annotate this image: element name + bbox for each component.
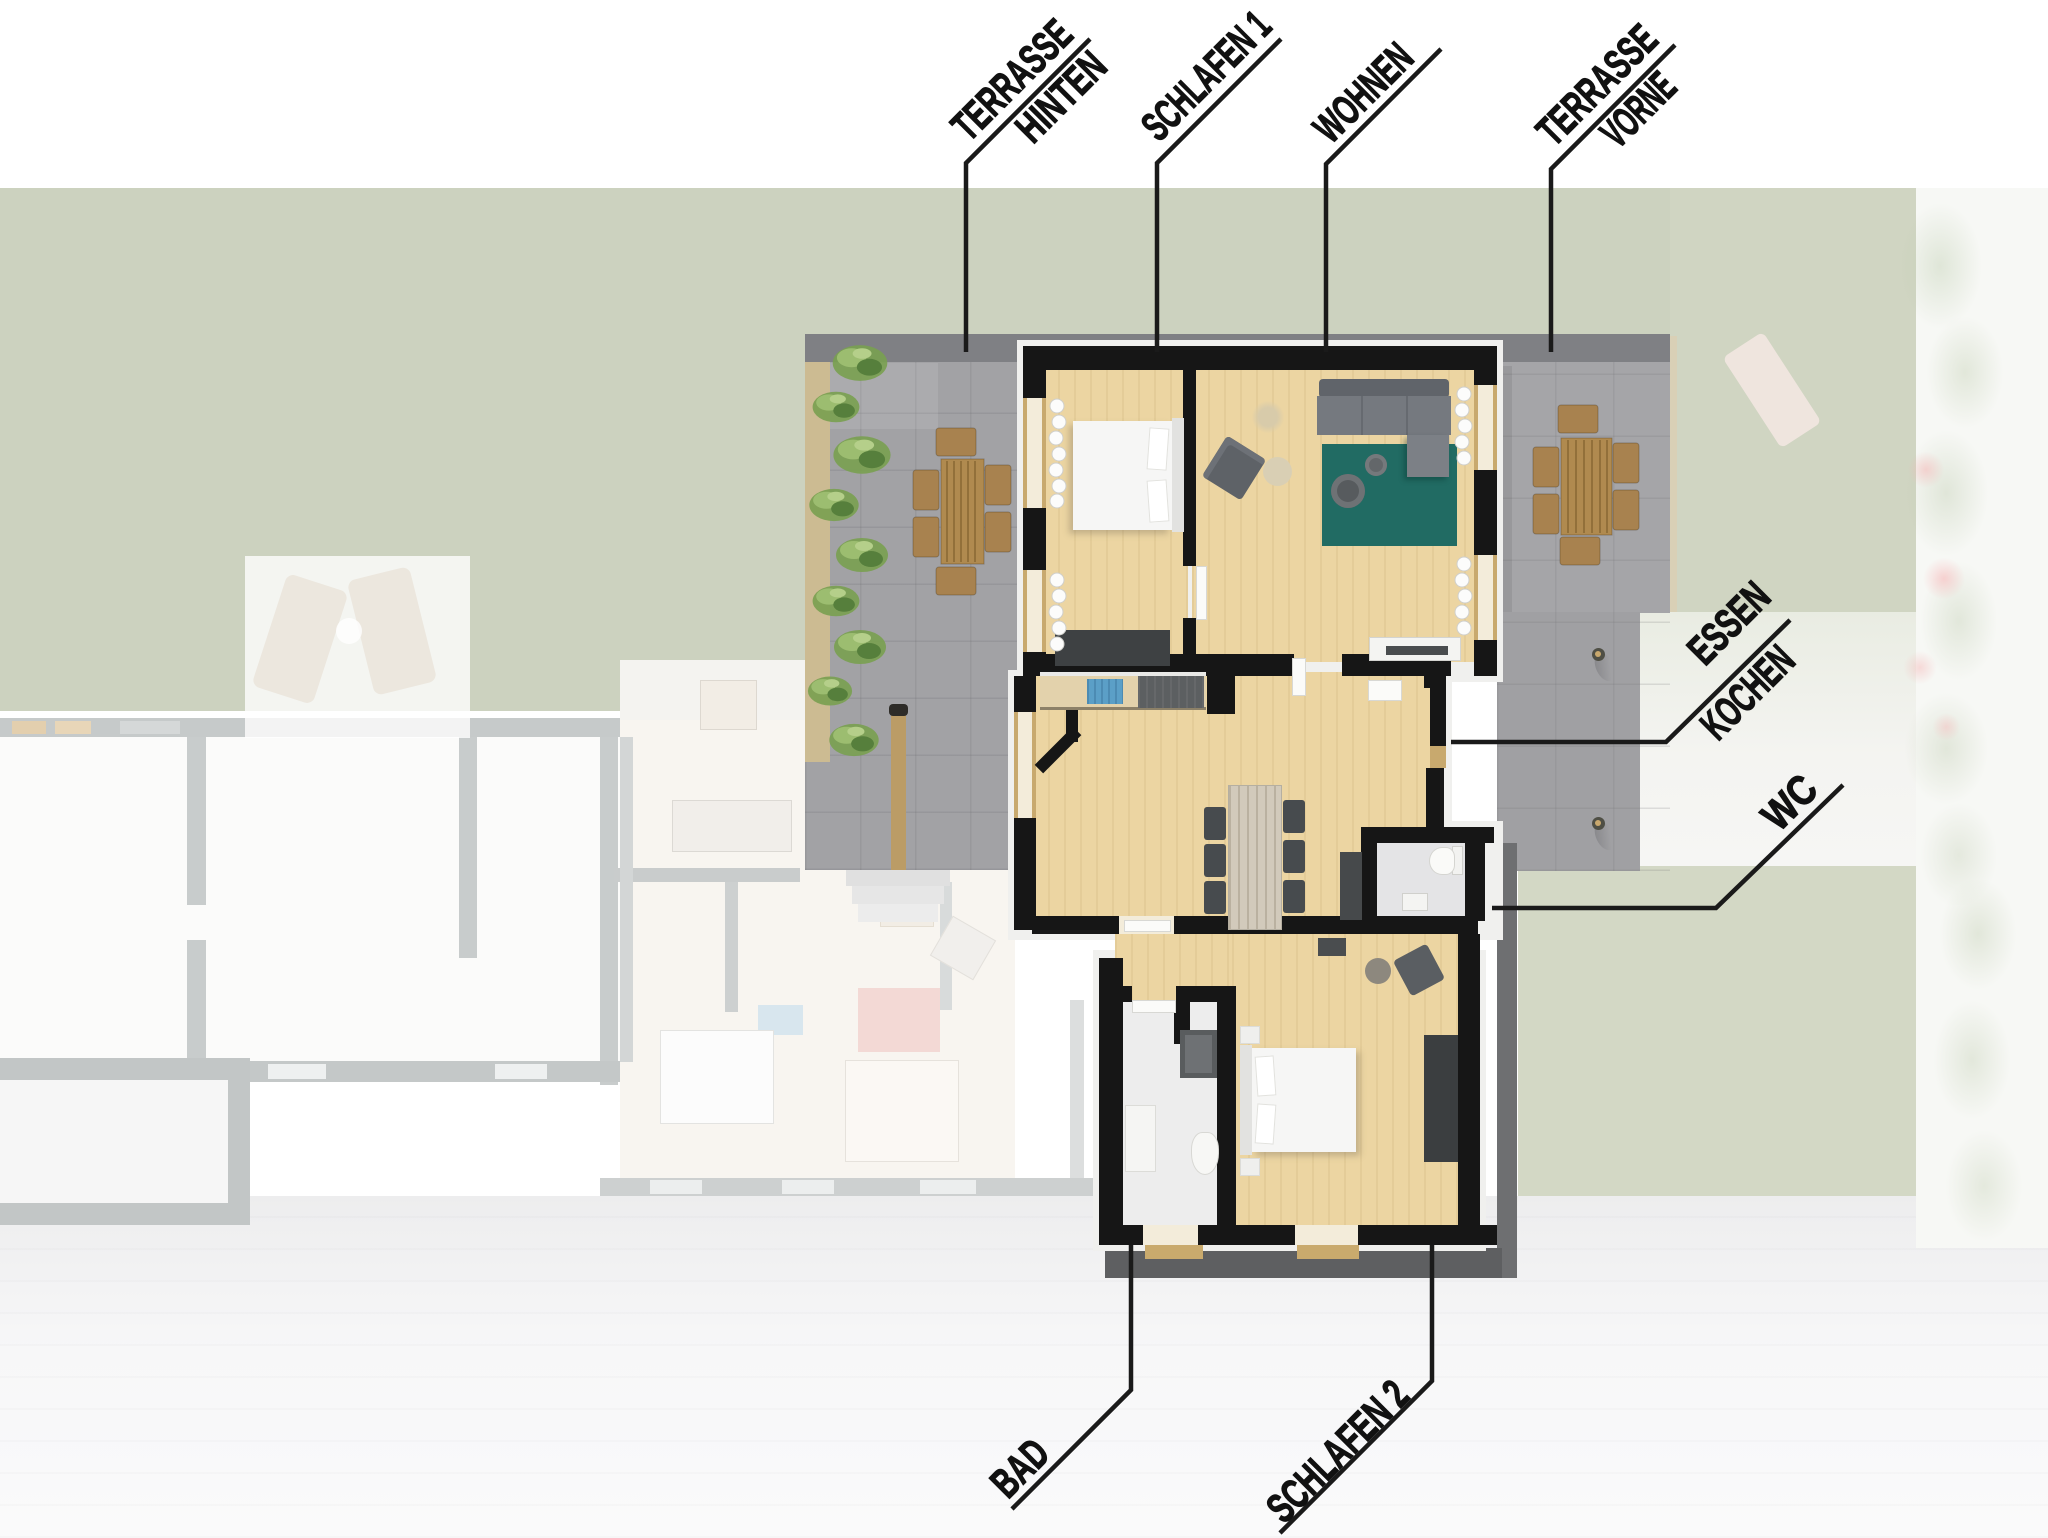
svg-text:SCHLAFEN 1: SCHLAFEN 1 (1132, 2, 1280, 150)
svg-text:SCHLAFEN 2: SCHLAFEN 2 (1257, 1371, 1418, 1532)
svg-text:WC: WC (1752, 765, 1826, 839)
svg-text:BAD: BAD (981, 1429, 1058, 1506)
svg-text:WOHNEN: WOHNEN (1304, 33, 1422, 151)
